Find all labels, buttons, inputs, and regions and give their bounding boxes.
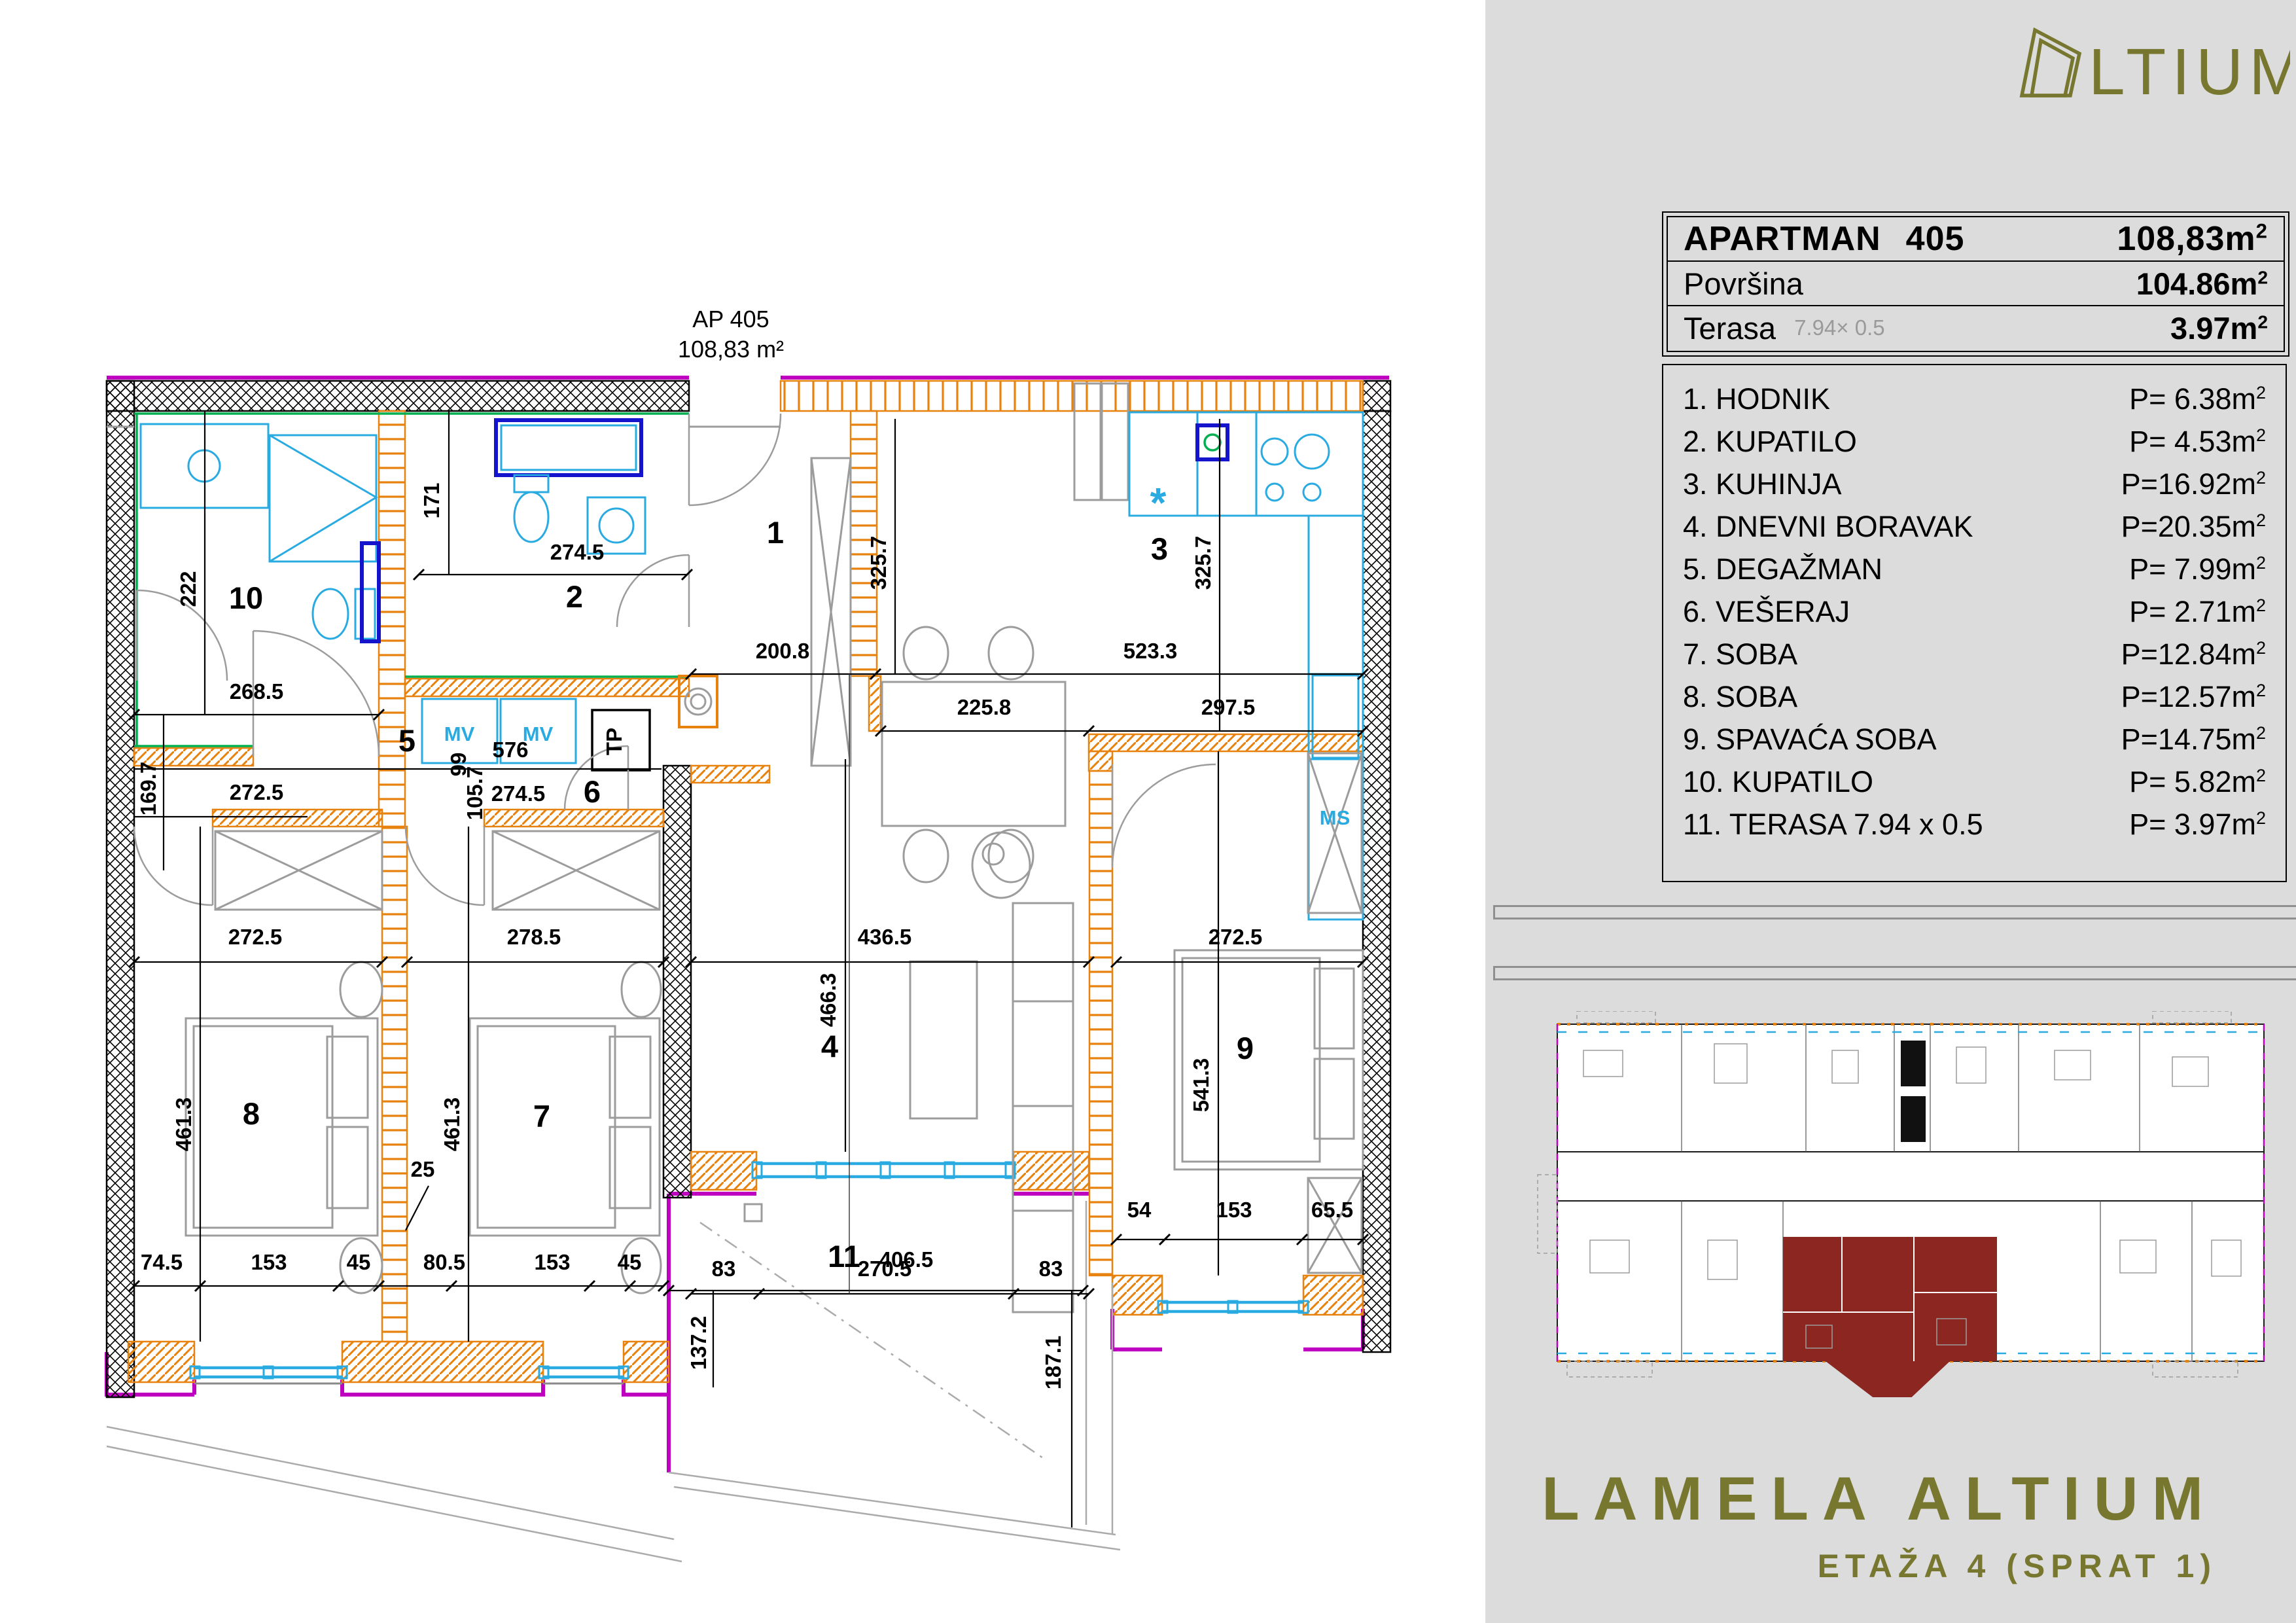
lamela-title: LAMELA ALTIUM <box>1542 1463 2217 1534</box>
dim-label: 105.7 <box>463 766 487 821</box>
room-name: 1. HODNIK <box>1683 382 1830 416</box>
plan-area-label: 108,83 m² <box>678 336 784 363</box>
dim-label: 274.5 <box>550 540 605 564</box>
room-number: 6 <box>584 774 601 809</box>
plan-title: AP 405 <box>692 306 769 332</box>
dim-label: 153 <box>534 1250 570 1274</box>
apartment-info-table: APARTMAN 405 108,83m2 Površina 104.86m2 … <box>1662 211 2289 357</box>
table-row-terasa: Terasa 7.94× 0.5 3.97m2 <box>1668 306 2284 349</box>
dim-label: 200.8 <box>756 639 810 663</box>
dim-label: 153 <box>1216 1198 1252 1222</box>
room-list-item: 1. HODNIKP= 6.38m2 <box>1663 382 2286 425</box>
floor-plan-sheet: 222268.5272.5169.7171274.599274.5576105.… <box>0 0 2296 1623</box>
dim-label: 54 <box>1127 1198 1152 1222</box>
dim-label: 278.5 <box>507 925 561 949</box>
armchair <box>972 832 1030 898</box>
wardrobe <box>215 831 382 910</box>
wardrobe <box>1308 1178 1362 1273</box>
room-list-item: 9. SPAVAĆA SOBAP=14.75m2 <box>1663 722 2286 765</box>
wardrobe <box>493 831 660 910</box>
dim-label: 461.3 <box>171 1097 196 1152</box>
room-name: 9. SPAVAĆA SOBA <box>1683 722 1937 757</box>
bathroom-2-fixtures <box>496 420 645 554</box>
room-list-item: 7. SOBAP=12.84m2 <box>1663 637 2286 680</box>
dining-set <box>882 627 1065 882</box>
dim-label: 436.5 <box>858 925 912 949</box>
divider-bar <box>1493 966 2296 980</box>
bed-room8 <box>186 962 382 1293</box>
room-number: 7 <box>533 1099 550 1133</box>
dim-label: 83 <box>1039 1257 1063 1281</box>
room-name: 11. TERASA 7.94 x 0.5 <box>1683 808 1983 842</box>
sofa <box>910 903 1073 1312</box>
dim-label: 45 <box>618 1250 642 1274</box>
room-area: P=14.75m2 <box>2121 722 2266 757</box>
dim-label: 461.3 <box>440 1097 464 1152</box>
row-label: Površina <box>1684 266 1803 302</box>
dim-label: 187.1 <box>1041 1336 1065 1390</box>
dim-label: 222 <box>176 571 200 607</box>
dim-label: 274.5 <box>491 781 546 806</box>
mv-label: MV <box>444 722 475 745</box>
dim-label: 272.5 <box>230 780 284 804</box>
room-list-item: 4. DNEVNI BORAVAKP=20.35m2 <box>1663 510 2286 552</box>
tp-label: TP <box>602 728 626 755</box>
dim-label: 272.5 <box>228 925 283 949</box>
room-name: 10. KUPATILO <box>1683 765 1873 799</box>
apartment-floor-plan: 222268.5272.5169.7171274.599274.5576105.… <box>0 0 1485 1623</box>
info-panel: LTIUM APARTMAN 405 108,83m2 Površina 104… <box>1485 0 2296 1623</box>
terasa-note: 7.94× 0.5 <box>1794 315 2170 340</box>
room-area-list: 1. HODNIKP= 6.38m22. KUPATILOP= 4.53m23.… <box>1662 364 2287 882</box>
dim-label: 297.5 <box>1201 695 1256 719</box>
room-name: 2. KUPATILO <box>1683 425 1857 459</box>
room-list-item: 3. KUHINJAP=16.92m2 <box>1663 467 2286 510</box>
dim-label: 541.3 <box>1189 1058 1213 1113</box>
wardrobe <box>1308 753 1362 913</box>
dim-label: 83 <box>712 1257 736 1281</box>
altium-logo: LTIUM <box>2015 26 2290 98</box>
room-number: 10 <box>229 580 263 615</box>
dim-label: 523.3 <box>1123 639 1178 663</box>
dim-label: 65.5 <box>1311 1198 1353 1222</box>
room-list-item: 10. KUPATILOP= 5.82m2 <box>1663 765 2286 808</box>
room-name: 8. SOBA <box>1683 680 1797 714</box>
room-list-item: 5. DEGAŽMANP= 7.99m2 <box>1663 552 2286 595</box>
room-number: 11 <box>828 1239 860 1274</box>
room-list-item: 6. VEŠERAJP= 2.71m2 <box>1663 595 2286 637</box>
dim-label: 272.5 <box>1209 925 1263 949</box>
room-area: P= 5.82m2 <box>2129 765 2266 799</box>
room-list-item: 8. SOBAP=12.57m2 <box>1663 680 2286 722</box>
exterior-walls <box>107 381 1390 1397</box>
room-list-item: 2. KUPATILOP= 4.53m2 <box>1663 425 2286 467</box>
room-number: 1 <box>767 515 784 550</box>
row-value: 3.97m2 <box>2170 310 2268 346</box>
dim-label: 466.3 <box>816 973 840 1027</box>
mv-label: MV <box>523 722 554 745</box>
room-area: P= 6.38m2 <box>2129 382 2266 416</box>
etaza-subtitle: ETAŽA 4 (SPRAT 1) <box>1542 1547 2217 1585</box>
building-overview-plan <box>1531 1011 2290 1397</box>
sheet-footer: LAMELA ALTIUM ETAŽA 4 (SPRAT 1) <box>1542 1463 2217 1585</box>
room-area: P=12.84m2 <box>2121 637 2266 671</box>
overview-highlight-apartment <box>1783 1237 1997 1397</box>
room-name: 3. KUHINJA <box>1683 467 1842 501</box>
apartment-total-area: 108,83m2 <box>2117 219 2268 259</box>
room-number: 3 <box>1151 531 1168 566</box>
room-name: 5. DEGAŽMAN <box>1683 552 1882 586</box>
room-area: P= 2.71m2 <box>2129 595 2266 629</box>
apartment-label: APARTMAN <box>1684 219 1881 259</box>
dim-label: 325.7 <box>866 536 891 590</box>
dim-label: 406.5 <box>879 1247 934 1272</box>
altium-mark-icon <box>2022 30 2079 96</box>
room-list-item: 11. TERASA 7.94 x 0.5P= 3.97m2 <box>1663 808 2286 850</box>
room-number: 9 <box>1237 1031 1254 1065</box>
room-area: P=16.92m2 <box>2121 467 2266 501</box>
dim-label: 225.8 <box>957 695 1012 719</box>
room-area: P= 3.97m2 <box>2129 808 2266 842</box>
row-label: Terasa <box>1684 310 1776 346</box>
table-row-povrsina: Površina 104.86m2 <box>1668 262 2284 306</box>
room-area: P=20.35m2 <box>2121 510 2266 544</box>
room-name: 7. SOBA <box>1683 637 1797 671</box>
dim-label: 80.5 <box>423 1250 465 1274</box>
room-area: P= 4.53m2 <box>2129 425 2266 459</box>
bed-room7 <box>470 962 661 1293</box>
room-number: 8 <box>243 1096 260 1131</box>
room-area: P=12.57m2 <box>2121 680 2266 714</box>
room-name: 4. DNEVNI BORAVAK <box>1683 510 1973 544</box>
room-number: 2 <box>566 579 583 614</box>
hall-closet <box>811 458 851 766</box>
dim-label: 45 <box>347 1250 371 1274</box>
room-name: 6. VEŠERAJ <box>1683 595 1850 629</box>
dim-label: 325.7 <box>1191 536 1215 590</box>
room-area: P= 7.99m2 <box>2129 552 2266 586</box>
dim-label: 171 <box>419 482 444 518</box>
dim-label: 268.5 <box>230 679 284 704</box>
table-title-row: APARTMAN 405 108,83m2 <box>1668 217 2284 262</box>
apartment-number: 405 <box>1906 219 1965 259</box>
logo-text: LTIUM <box>2089 35 2290 98</box>
room-number: 5 <box>398 723 415 758</box>
dim-label: 169.7 <box>136 762 160 816</box>
row-value: 104.86m2 <box>2136 266 2268 302</box>
dim-label: 25 <box>411 1157 435 1181</box>
dim-label: 137.2 <box>686 1316 711 1370</box>
dim-label: 74.5 <box>141 1250 183 1274</box>
room-number: 4 <box>821 1029 838 1063</box>
divider-bar <box>1493 905 2296 919</box>
dim-label: 153 <box>251 1250 287 1274</box>
sink-symbol: * <box>1150 479 1167 526</box>
interior-walls <box>128 381 1363 1382</box>
ms-label: MS <box>1320 806 1351 829</box>
